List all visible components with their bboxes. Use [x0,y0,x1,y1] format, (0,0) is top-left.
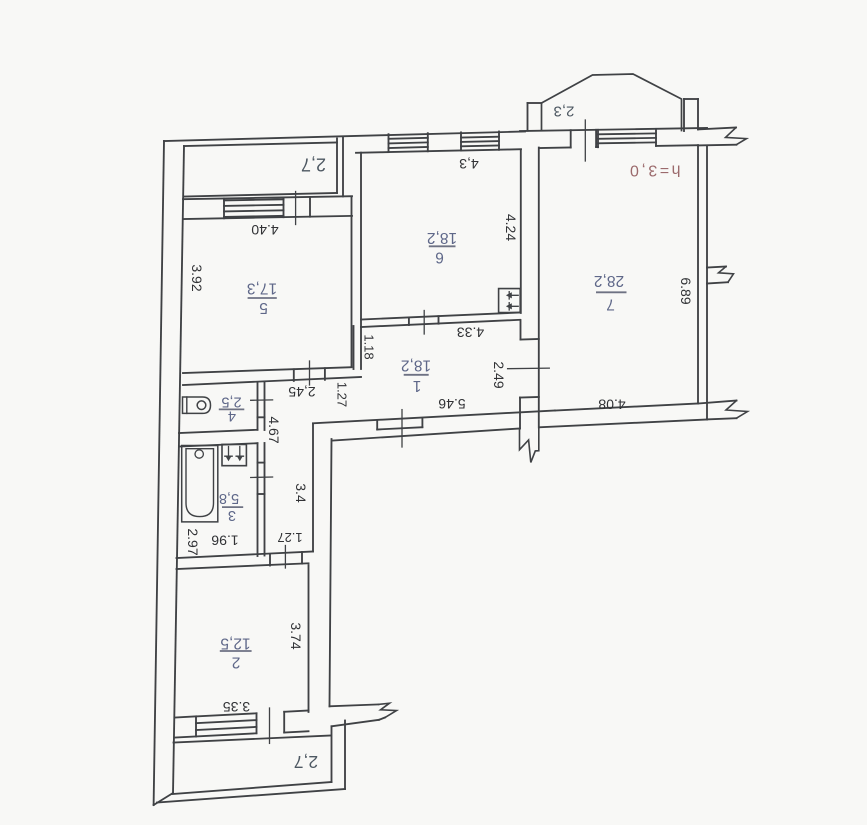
svg-text:2,5: 2,5 [221,394,241,410]
svg-text:2,45: 2,45 [288,384,315,400]
svg-text:5.46: 5.46 [438,396,465,412]
svg-text:4.08: 4.08 [598,397,625,413]
svg-text:18,2: 18,2 [427,229,457,246]
svg-text:28,2: 28,2 [594,272,624,289]
svg-text:1.96: 1.96 [211,533,238,549]
svg-text:3.35: 3.35 [223,699,250,715]
svg-text:4.33: 4.33 [457,325,484,341]
svg-text:5,8: 5,8 [219,490,239,506]
svg-text:h=3,0: h=3,0 [628,162,681,179]
svg-text:12,5: 12,5 [220,635,250,652]
svg-text:1.27: 1.27 [335,382,350,407]
svg-text:3.74: 3.74 [288,622,304,649]
svg-text:2,7: 2,7 [294,752,318,772]
svg-text:6.89: 6.89 [678,277,694,304]
svg-text:2.97: 2.97 [185,528,201,555]
svg-text:18,2: 18,2 [401,357,431,374]
svg-text:1: 1 [413,377,422,394]
svg-text:1.27: 1.27 [277,530,302,545]
svg-text:3: 3 [228,507,236,523]
svg-text:5: 5 [259,299,268,316]
svg-text:4: 4 [228,408,236,424]
svg-text:4.40: 4.40 [251,222,278,238]
svg-text:3.4: 3.4 [293,483,309,503]
svg-text:6: 6 [435,249,444,266]
svg-text:2,3: 2,3 [554,103,575,120]
svg-text:7: 7 [606,296,615,313]
svg-text:4.67: 4.67 [266,416,282,443]
svg-text:2: 2 [232,654,241,671]
svg-text:3.92: 3.92 [189,264,205,291]
svg-text:1.18: 1.18 [362,334,377,359]
svg-text:2.49: 2.49 [491,361,507,388]
svg-text:2,7: 2,7 [301,155,326,175]
svg-text:4,3: 4,3 [459,156,479,172]
svg-text:17,3: 17,3 [247,280,277,297]
svg-text:4.24: 4.24 [503,214,519,241]
